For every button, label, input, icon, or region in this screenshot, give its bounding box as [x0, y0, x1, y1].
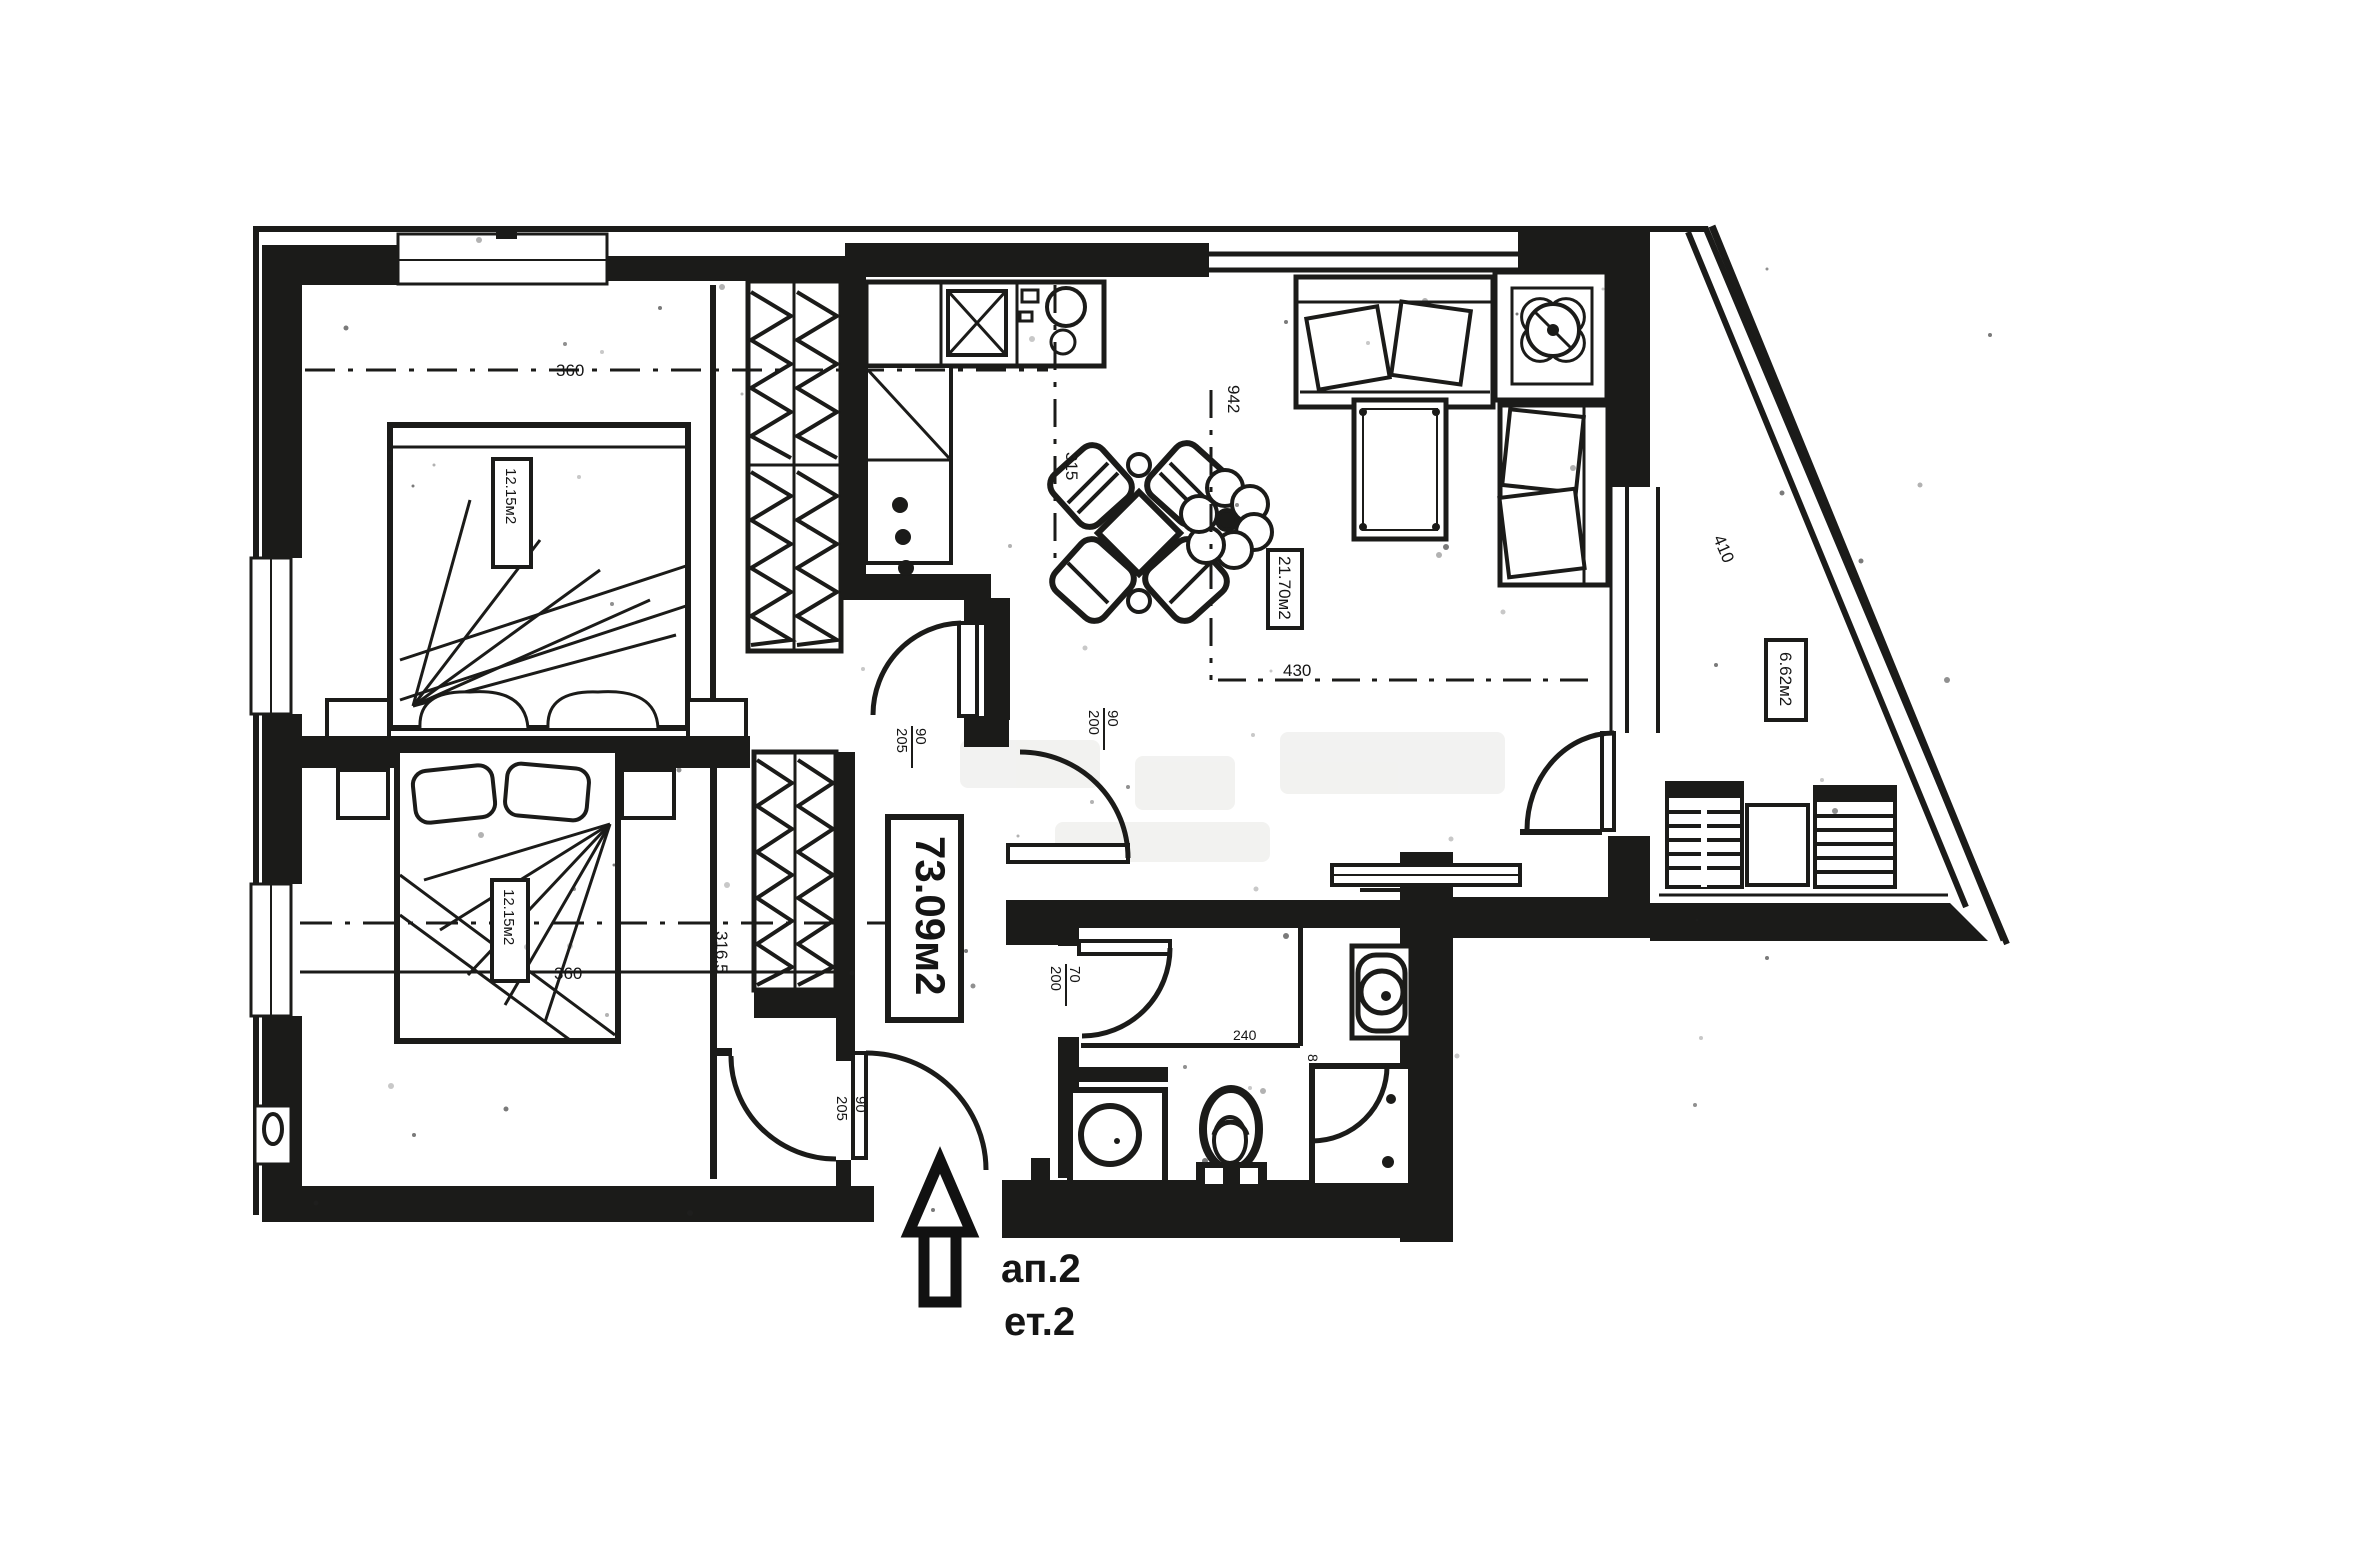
svg-text:ет.2: ет.2 — [1004, 1300, 1075, 1344]
svg-text:430: 430 — [1283, 661, 1311, 680]
svg-text:90: 90 — [1104, 710, 1121, 727]
svg-text:73.09м2: 73.09м2 — [907, 836, 954, 996]
svg-text:360: 360 — [556, 361, 584, 380]
svg-text:200: 200 — [1085, 710, 1102, 735]
svg-text:942: 942 — [1224, 385, 1243, 413]
svg-text:200: 200 — [1047, 966, 1064, 991]
svg-text:240: 240 — [1233, 1027, 1257, 1043]
svg-text:12.15м2: 12.15м2 — [502, 468, 519, 524]
svg-text:21.70м2: 21.70м2 — [1275, 556, 1294, 620]
svg-text:205: 205 — [893, 728, 910, 753]
svg-text:ап.2: ап.2 — [1001, 1247, 1081, 1291]
svg-text:90: 90 — [912, 728, 929, 745]
svg-text:360: 360 — [554, 964, 582, 983]
svg-text:12.15м2: 12.15м2 — [500, 889, 517, 945]
svg-text:90: 90 — [852, 1096, 869, 1113]
svg-text:70: 70 — [1066, 966, 1083, 983]
svg-text:6.62м2: 6.62м2 — [1776, 652, 1795, 706]
svg-text:205: 205 — [833, 1096, 850, 1121]
svg-text:8: 8 — [1305, 1054, 1321, 1062]
svg-text:315: 315 — [1062, 452, 1081, 480]
svg-text:316.5: 316.5 — [712, 931, 731, 974]
